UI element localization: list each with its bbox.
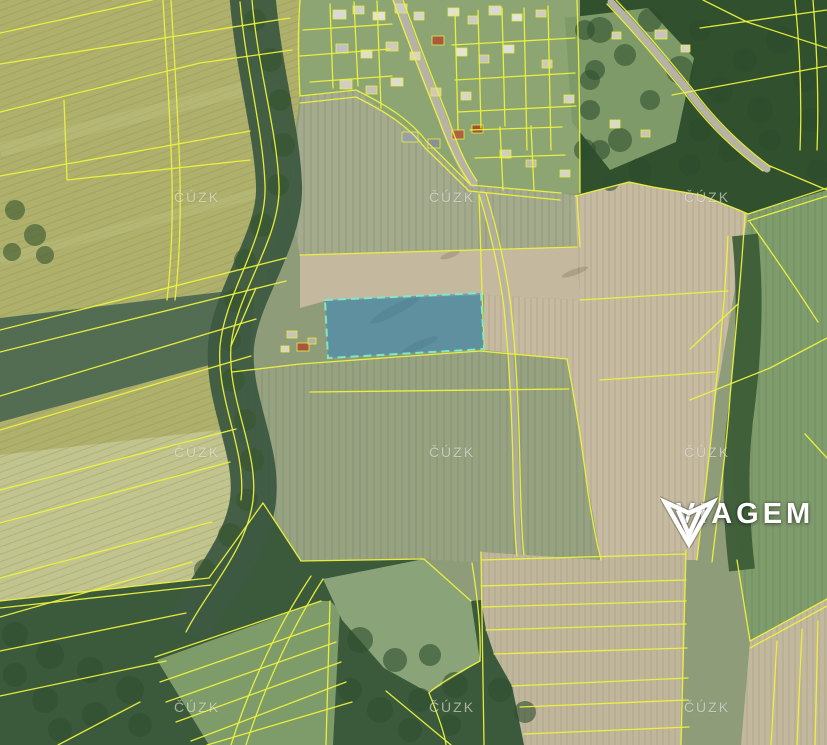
highlighted-parcel bbox=[325, 293, 484, 358]
cuzk-watermark: ČÚZK bbox=[684, 444, 730, 460]
map-canvas[interactable]: ČÚZK ČÚZK ČÚZK ČÚZK ČÚZK ČÚZK ČÚZK ČÚZK … bbox=[0, 0, 827, 745]
cuzk-watermark: ČÚZK bbox=[429, 444, 475, 460]
cuzk-watermark: ČÚZK bbox=[429, 699, 475, 715]
cuzk-watermark: ČÚZK bbox=[429, 189, 475, 205]
brand-watermark: VIAGEM bbox=[660, 496, 827, 531]
cuzk-watermark: ČÚZK bbox=[174, 699, 220, 715]
viagem-diamond-v-icon bbox=[660, 496, 718, 548]
cuzk-watermark: ČÚZK bbox=[174, 444, 220, 460]
cuzk-watermark: ČÚZK bbox=[174, 189, 220, 205]
aerial-imagery bbox=[0, 0, 827, 745]
cuzk-watermark: ČÚZK bbox=[684, 699, 730, 715]
cuzk-watermark: ČÚZK bbox=[684, 189, 730, 205]
